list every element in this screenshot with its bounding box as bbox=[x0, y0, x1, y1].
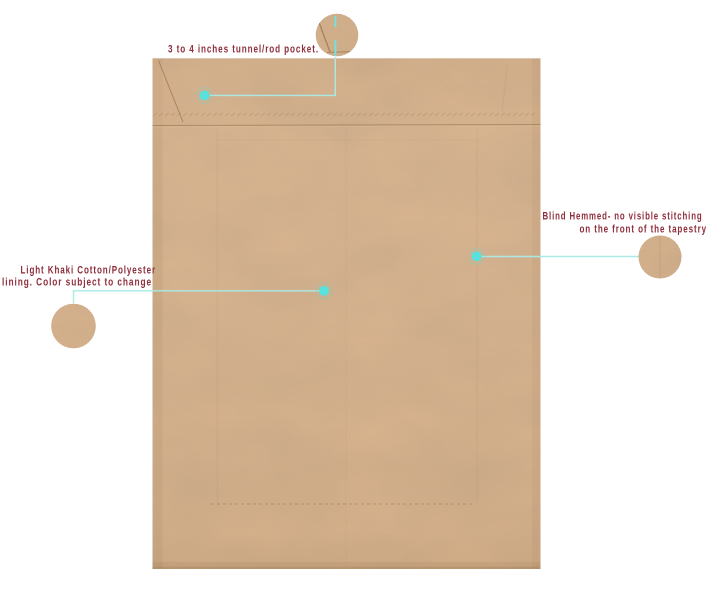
svg-text:3 to 4 inches tunnel/rod pocke: 3 to 4 inches tunnel/rod pocket. bbox=[168, 44, 319, 56]
svg-text:on the front of the tapestry.: on the front of the tapestry. bbox=[580, 223, 706, 235]
svg-text:lining. Color subject to chang: lining. Color subject to change bbox=[2, 277, 152, 289]
svg-text:Blind Hemmed- no visible stitc: Blind Hemmed- no visible stitching bbox=[543, 211, 703, 223]
svg-text:Light Khaki Cotton/Polyester: Light Khaki Cotton/Polyester bbox=[21, 265, 157, 277]
